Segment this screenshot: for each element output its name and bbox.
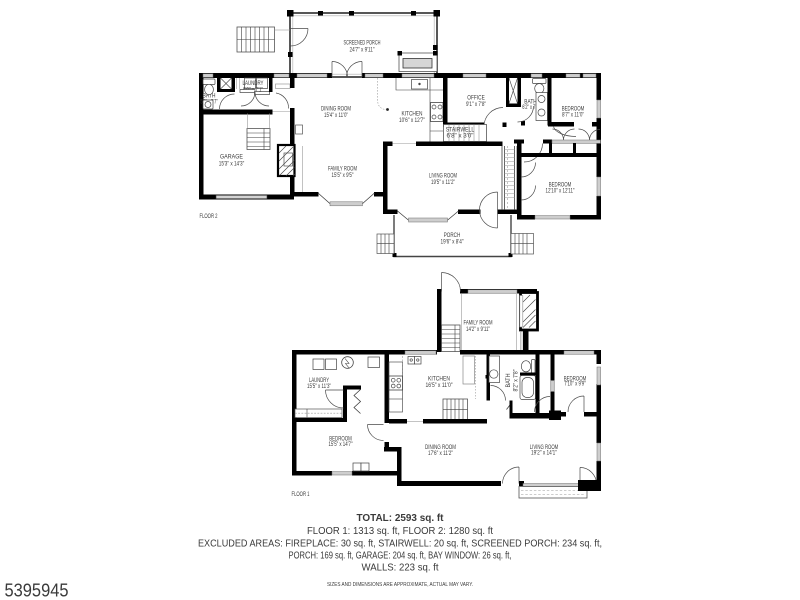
svg-text:FLOOR 2: FLOOR 2: [200, 214, 218, 220]
svg-text:FLOOR 1: FLOOR 1: [292, 492, 310, 498]
svg-text:15'5" x 9'5": 15'5" x 9'5": [332, 173, 354, 179]
svg-text:KITCHEN: KITCHEN: [402, 112, 423, 118]
svg-text:WALLS: 223 sq. ft: WALLS: 223 sq. ft: [362, 563, 439, 574]
svg-text:FLOOR 1: 1313 sq. ft, FLOOR 2:: FLOOR 1: 1313 sq. ft, FLOOR 2: 1280 sq. …: [307, 526, 493, 537]
svg-text:GARAGE: GARAGE: [220, 155, 243, 161]
svg-text:19'5" x 11'2": 19'5" x 11'2": [431, 180, 455, 186]
svg-text:15'3" x 14'3": 15'3" x 14'3": [219, 161, 245, 167]
svg-text:9'1" x 7'8": 9'1" x 7'8": [466, 102, 486, 108]
svg-text:DINING ROOM: DINING ROOM: [321, 106, 351, 112]
svg-text:24'7" x 9'11": 24'7" x 9'11": [350, 47, 375, 53]
svg-text:PORCH: 169 sq. ft, GARAGE: 204: PORCH: 169 sq. ft, GARAGE: 204 sq. ft, B…: [289, 551, 512, 562]
svg-text:8'7" x 11'0": 8'7" x 11'0": [562, 113, 584, 119]
svg-text:15'4" x 11'0": 15'4" x 11'0": [324, 113, 348, 119]
svg-text:8'2" x 7'8": 8'2" x 7'8": [514, 370, 520, 392]
svg-text:15'5" x 14'7": 15'5" x 14'7": [329, 442, 353, 448]
svg-text:5395945: 5395945: [5, 581, 69, 600]
svg-text:12'10" x 12'11": 12'10" x 12'11": [546, 188, 575, 194]
svg-text:10'6" x 12'7": 10'6" x 12'7": [399, 118, 425, 124]
svg-text:BATH: BATH: [506, 374, 512, 388]
svg-text:19'2" x 14'1": 19'2" x 14'1": [531, 451, 557, 457]
svg-text:SCREENED PORCH: SCREENED PORCH: [344, 40, 381, 46]
svg-text:EXCLUDED AREAS: FIREPLACE: 30: EXCLUDED AREAS: FIREPLACE: 30 sq. ft, ST…: [198, 539, 602, 550]
svg-text:16'5" x 11'0": 16'5" x 11'0": [426, 383, 453, 389]
svg-text:7'10" x 9'9": 7'10" x 9'9": [564, 382, 586, 388]
svg-text:KITCHEN: KITCHEN: [428, 376, 450, 382]
svg-text:SIZES AND DIMENSIONS ARE APPRO: SIZES AND DIMENSIONS ARE APPROXIMATE, AC…: [327, 582, 473, 588]
svg-text:LAUNDRY: LAUNDRY: [243, 81, 264, 87]
svg-text:FAMILY ROOM: FAMILY ROOM: [464, 320, 493, 326]
svg-text:14'2" x 9'11": 14'2" x 9'11": [466, 327, 490, 333]
svg-text:17'6" x 11'2": 17'6" x 11'2": [428, 451, 453, 457]
svg-text:15'5" x 11'3": 15'5" x 11'3": [307, 384, 331, 390]
svg-text:PORCH: PORCH: [444, 233, 461, 239]
svg-text:FAMILY ROOM: FAMILY ROOM: [328, 166, 357, 172]
svg-text:6'8" x 3'0": 6'8" x 3'0": [447, 133, 474, 139]
svg-text:OFFICE: OFFICE: [467, 95, 485, 101]
svg-text:19'6" x 8'4": 19'6" x 8'4": [441, 239, 464, 245]
svg-text:TOTAL: 2593 sq. ft: TOTAL: 2593 sq. ft: [357, 512, 444, 524]
svg-text:LIVING ROOM: LIVING ROOM: [429, 173, 457, 179]
